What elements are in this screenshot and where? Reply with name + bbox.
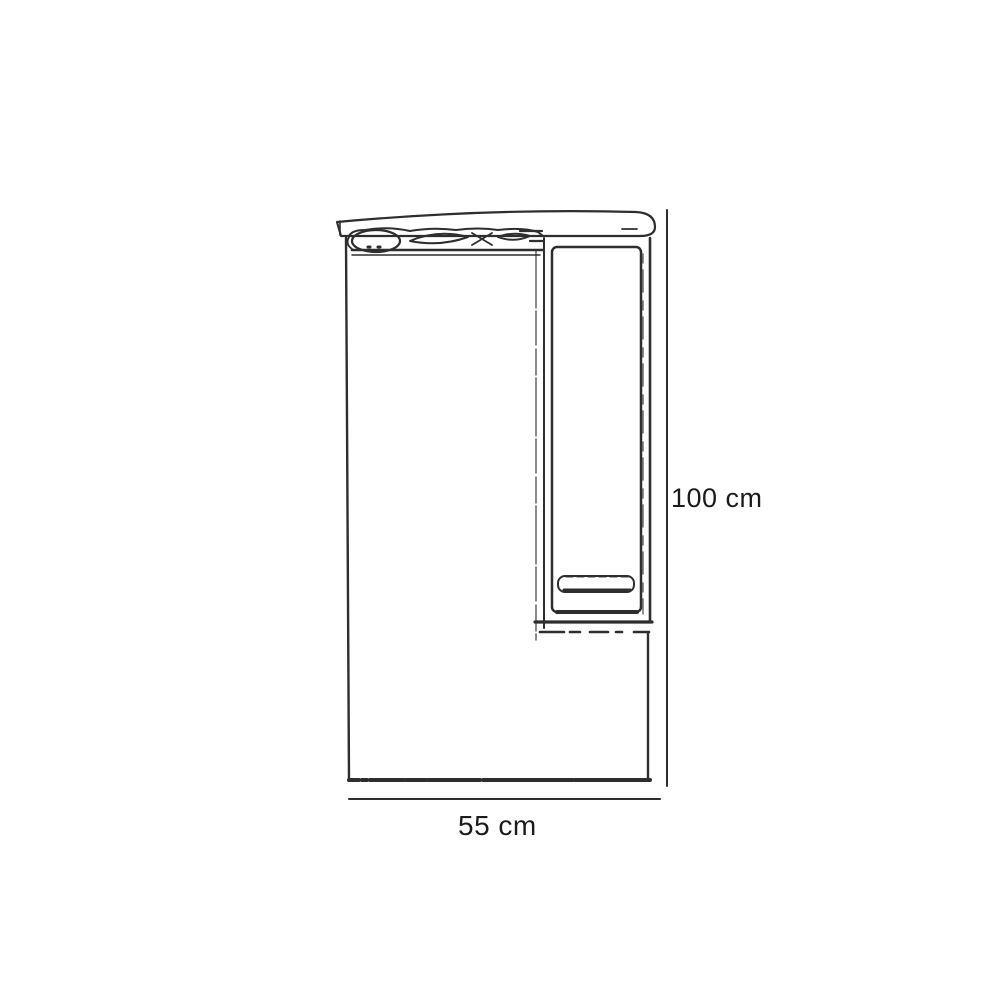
width-dimension-label: 55 cm	[458, 812, 537, 840]
diagram-canvas: 100 cm 55 cm	[0, 0, 1000, 1000]
mirror-left-edge	[346, 238, 349, 780]
canopy-outline	[337, 211, 655, 236]
side-cabinet	[535, 238, 652, 640]
mirror-cabinet-drawing	[0, 0, 1000, 1000]
canopy-top	[337, 211, 655, 236]
door-handle	[558, 576, 634, 592]
mirror-panel	[346, 238, 650, 780]
cabinet-door	[552, 247, 641, 612]
fixture-bowtie	[472, 233, 492, 245]
light-fixture-strip	[348, 228, 543, 255]
height-dimension-label: 100 cm	[671, 485, 763, 512]
dimension-lines	[349, 210, 667, 799]
